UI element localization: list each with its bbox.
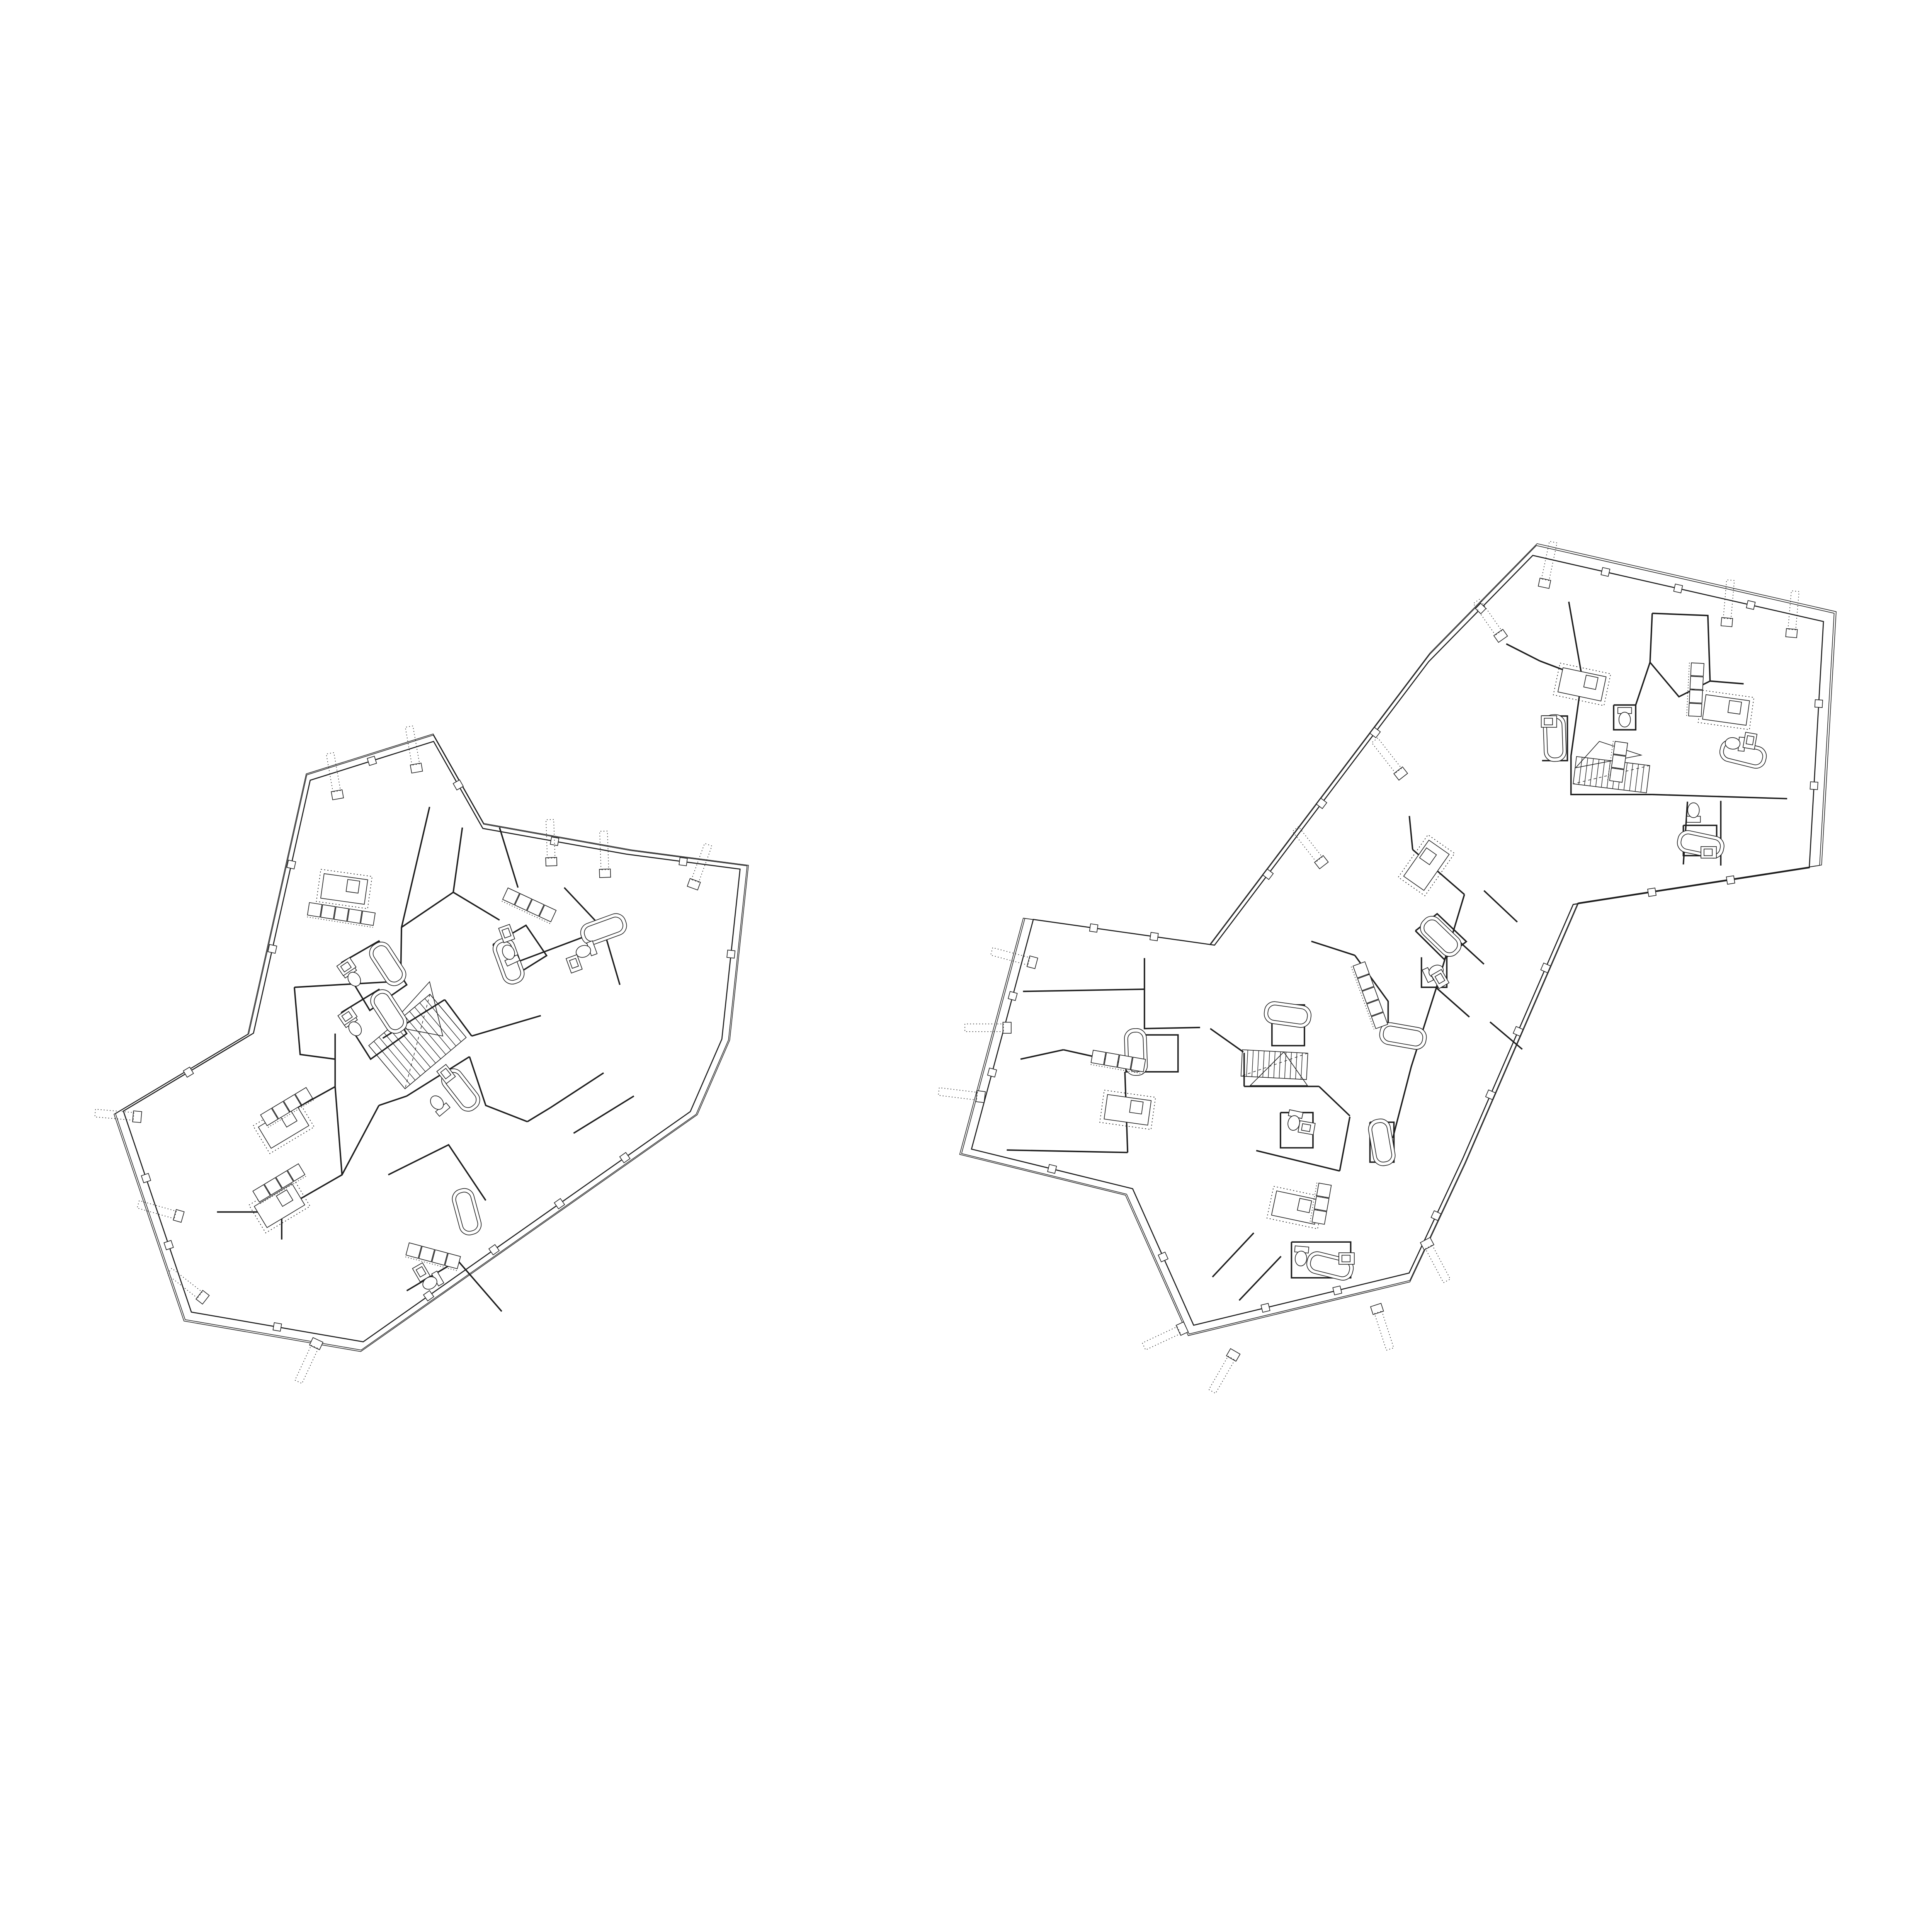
facade-post [1371, 1303, 1384, 1315]
kitchen-counter [307, 903, 375, 927]
kitchen-island [1698, 690, 1754, 730]
canopy-beam [1371, 1303, 1395, 1351]
bathtub [450, 1186, 483, 1237]
bathtub-rim [1378, 1021, 1428, 1051]
canopy-dotted-outline [405, 726, 420, 765]
bathtub-rim [450, 1186, 483, 1237]
bathtub-rim [1367, 1118, 1397, 1167]
canopy-beam [95, 1107, 142, 1123]
bathtub [367, 986, 411, 1037]
interior-wall [342, 1106, 379, 1175]
facade-mullion-post [1601, 568, 1610, 577]
stair-tread [1290, 1052, 1292, 1078]
interior-wall [1490, 1022, 1522, 1050]
facade-mullion-post [141, 1174, 151, 1183]
sink-counter [1701, 847, 1716, 858]
interior-wall [551, 1073, 604, 1108]
interior-wall [1636, 662, 1650, 705]
floor-plan-west-building [95, 726, 748, 1384]
interior-wall [1506, 644, 1540, 661]
facade-mullion-post [183, 1067, 193, 1077]
counter-unit [347, 909, 362, 924]
bathtub [578, 911, 629, 947]
canopy-dotted-outline [991, 947, 1030, 965]
bathtub-rim [366, 938, 410, 990]
island-body [1702, 695, 1750, 725]
facade-mullion-post [550, 837, 559, 845]
counter-unit [308, 903, 322, 917]
facade-mullion-post [1810, 782, 1818, 789]
interior-wall [1409, 816, 1413, 850]
interior-wall [1652, 794, 1787, 799]
sink [1298, 1121, 1315, 1135]
canopy-beam [965, 1022, 1011, 1033]
facade-post [1315, 856, 1328, 869]
canopy-beam [598, 831, 611, 878]
interior-wall [1213, 1233, 1254, 1277]
sink-counter [1541, 716, 1557, 727]
counter-unit [1131, 1057, 1146, 1072]
facade-mullion-post [453, 780, 463, 790]
toilet [1618, 708, 1632, 727]
counter-unit [1316, 1183, 1331, 1198]
counter-unit [1690, 663, 1704, 676]
sink [1339, 1253, 1354, 1264]
stair-tread [415, 1007, 451, 1050]
counter-unit [1091, 1050, 1106, 1065]
stair-tread [1268, 1051, 1270, 1077]
canopy-beam [1420, 1237, 1452, 1283]
facade-post [546, 857, 557, 866]
stair-landing [1250, 1052, 1307, 1085]
bathtub-rim [1416, 912, 1465, 961]
sink [1701, 847, 1716, 858]
interior-wall [1007, 1150, 1128, 1152]
facade-mullion-post [1263, 869, 1273, 879]
stair-tread [1252, 1050, 1253, 1077]
canopy-beam [404, 726, 423, 773]
stair-tread [1629, 764, 1633, 791]
facade-mullion-post [1333, 1286, 1342, 1295]
stair-tread [1247, 1050, 1248, 1076]
interior-wall [573, 1096, 634, 1133]
interior-wall [1311, 941, 1355, 955]
facade-mullion-post [1673, 584, 1682, 593]
stair-break-line [1241, 1050, 1308, 1080]
facade-post [1027, 956, 1038, 969]
interior-wall [527, 1107, 551, 1121]
counter-unit [419, 1246, 434, 1262]
stair-tread [389, 1029, 425, 1072]
interior-wall [1256, 1151, 1340, 1171]
canopy-dotted-outline [1788, 591, 1799, 630]
stair-tread [1590, 759, 1594, 786]
facade-post [310, 1338, 323, 1350]
interior-wall [1239, 1256, 1281, 1300]
stair-tread [1641, 765, 1644, 792]
drawing-sheet [0, 0, 1932, 1917]
canopy-beam [1371, 737, 1408, 780]
canopy-beam [1142, 1322, 1189, 1351]
canopy-beam [325, 752, 344, 800]
stair-tread [374, 1041, 410, 1085]
interior-wall [294, 987, 335, 1059]
counter-unit [1314, 1196, 1329, 1211]
sink-counter [566, 955, 582, 973]
counter-unit [361, 911, 376, 926]
facade-mullion-post [1150, 932, 1158, 941]
facade-post [1494, 629, 1508, 643]
facade-mullion-post [1261, 1303, 1270, 1312]
counter-unit [1690, 676, 1703, 689]
counter-unit [432, 1250, 447, 1265]
canopy-beam [1291, 826, 1328, 869]
facade-mullion-post [554, 1199, 565, 1209]
bathtub-rim [367, 986, 411, 1037]
stair-landing [1576, 742, 1641, 768]
toilet [427, 1092, 450, 1116]
kitchen-counter [1687, 663, 1704, 716]
bathtub [1378, 1021, 1428, 1051]
counter-unit [1689, 703, 1702, 716]
interior-wall [1710, 681, 1744, 684]
stair-tread [384, 1033, 420, 1076]
interior-wall [1340, 1117, 1350, 1171]
facade-mullion-post [679, 857, 687, 866]
island-body [321, 874, 368, 904]
facade-post [599, 869, 611, 878]
interior-wall [1484, 891, 1517, 922]
roof-outline-outer [960, 544, 1836, 1336]
canopy-dotted-outline [1293, 827, 1322, 862]
toilet [1687, 803, 1701, 822]
facade-mullion-post [1008, 992, 1017, 1001]
facade-post [687, 878, 701, 890]
interior-wall [472, 1015, 541, 1036]
kitchen-counter [1608, 741, 1628, 782]
sink-counter [1743, 732, 1757, 750]
interior-wall [1020, 1050, 1063, 1059]
stair-tread [1285, 1052, 1286, 1078]
sink [566, 955, 582, 973]
facade-mullion-post [1815, 700, 1823, 708]
counter-unit [1117, 1055, 1132, 1070]
facade-mullion-post [727, 950, 735, 958]
counter-unit [1610, 768, 1624, 782]
canopy-beam [293, 1338, 323, 1385]
facade-mullion-post [988, 1068, 997, 1077]
island-body [1104, 1094, 1151, 1125]
facade-post [1538, 578, 1551, 589]
counter-unit [1689, 690, 1702, 703]
facade-mullion-post [1158, 1252, 1168, 1262]
sink [1541, 716, 1557, 727]
canopy-dotted-outline [326, 753, 340, 792]
stair-tread [1301, 1053, 1303, 1079]
facade-mullion-post [423, 1291, 434, 1301]
bathtub [1416, 912, 1465, 961]
canopy-dotted-outline [938, 1088, 977, 1100]
counter-unit [406, 1243, 421, 1258]
toilet-bowl [1619, 712, 1631, 727]
stair-tread [1257, 1051, 1259, 1077]
kitchen-island [1100, 1090, 1155, 1129]
kitchen-counter [405, 1243, 461, 1271]
facade-mullion-post [1090, 924, 1098, 932]
bathtub [366, 938, 410, 990]
facade-post [1003, 1022, 1011, 1033]
facade-mullion-post [1648, 888, 1656, 896]
interior-wall [445, 1000, 472, 1036]
canopy-dotted-outline [1723, 580, 1735, 619]
sink-counter [1339, 1253, 1354, 1264]
facade-post [1420, 1237, 1434, 1250]
canopy-dotted-outline [1372, 738, 1401, 773]
canopy-beam [1207, 1349, 1240, 1394]
interior-wall [1145, 958, 1200, 1028]
toilet-bowl [1688, 803, 1699, 817]
canopy-dotted-outline [1142, 1327, 1180, 1350]
counter-unit [321, 905, 335, 919]
stair-tread [379, 1037, 415, 1080]
facade-mullion-post [273, 1323, 281, 1331]
canopy-dotted-outline [1374, 1311, 1394, 1350]
bathtub [1367, 1118, 1397, 1167]
sink [1743, 732, 1757, 750]
counter-unit [1611, 755, 1626, 769]
facade-mullion-post [268, 944, 277, 953]
facade-mullion-post [1726, 876, 1735, 884]
facade-mullion-post [287, 860, 296, 869]
canopy-beam [990, 946, 1038, 969]
interior-wall [1210, 1029, 1243, 1052]
facade-mullion-post [489, 1245, 499, 1255]
facade-post [173, 1209, 184, 1222]
facade-post [1176, 1322, 1188, 1335]
canopy-dotted-outline [1209, 1356, 1235, 1393]
counter-unit [445, 1253, 461, 1269]
counter-unit [1312, 1209, 1327, 1224]
interior-wall [469, 1057, 527, 1122]
interior-wall [1319, 1087, 1350, 1116]
kitchen-island [316, 869, 372, 909]
island-body [1558, 668, 1606, 701]
stair-tread [410, 1011, 446, 1055]
canopy-dotted-outline [965, 1024, 1003, 1032]
counter-unit [334, 907, 349, 922]
kitchen-island [1398, 835, 1455, 896]
canopy-dotted-outline [1425, 1245, 1450, 1283]
stair-tread [420, 1003, 456, 1046]
kitchen-counter [1351, 962, 1388, 1029]
canopy-beam [166, 1267, 209, 1304]
facade-mullion-post [164, 1240, 173, 1250]
stair-tread [1296, 1053, 1297, 1079]
interior-wall [453, 828, 500, 920]
interior-wall [1023, 989, 1145, 992]
stair-tread [1263, 1051, 1264, 1077]
facade-mullion-post [1747, 600, 1755, 609]
stair-tread [1579, 757, 1582, 785]
facade-mullion-post [1370, 727, 1380, 738]
floor-plan-canvas [0, 0, 1932, 1917]
counter-unit [1104, 1053, 1119, 1067]
kitchen-counter [502, 888, 556, 924]
facade-mullion-post [620, 1153, 630, 1163]
facade-post [1394, 767, 1408, 780]
facade-mullion-post [1048, 1164, 1056, 1173]
counter-unit [1613, 741, 1628, 755]
canopy-beam [687, 843, 714, 890]
staircase [1241, 1050, 1308, 1080]
stair-tread [1601, 760, 1605, 788]
interior-wall [500, 828, 518, 888]
facade-mullion-post [367, 756, 376, 765]
sink-counter [1298, 1121, 1315, 1135]
interior-wall [1436, 988, 1469, 1017]
canopy-beam [1721, 580, 1736, 627]
facade-mullion-post [1316, 798, 1327, 809]
floor-plan-east-building [938, 541, 1836, 1394]
canopy-dotted-outline [295, 1345, 318, 1383]
interior-wall [379, 1096, 407, 1105]
canopy-beam [938, 1086, 985, 1103]
